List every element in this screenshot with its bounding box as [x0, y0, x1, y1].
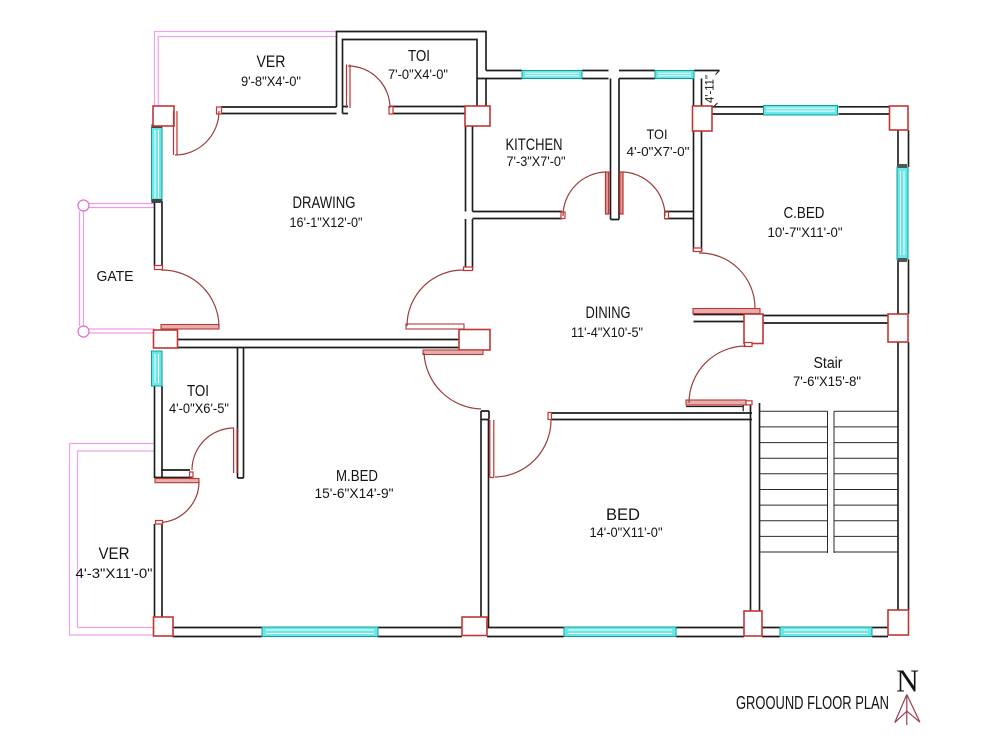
- svg-text:10'-7"X11'-0": 10'-7"X11'-0": [768, 225, 843, 240]
- svg-text:9'-8"X4'-0": 9'-8"X4'-0": [241, 74, 301, 89]
- svg-text:TOI: TOI: [408, 48, 430, 65]
- svg-text:DINING: DINING: [586, 303, 631, 322]
- svg-text:VER: VER: [257, 52, 286, 71]
- svg-text:BED: BED: [606, 505, 640, 524]
- svg-text:4'-0"X7'-0": 4'-0"X7'-0": [627, 144, 690, 159]
- svg-text:4'-11": 4'-11": [705, 75, 717, 103]
- svg-text:VER: VER: [99, 544, 130, 563]
- svg-text:M.BED: M.BED: [336, 468, 378, 485]
- svg-text:TOI: TOI: [647, 126, 668, 142]
- svg-text:GROOUND FLOOR PLAN: GROOUND FLOOR PLAN: [736, 692, 889, 713]
- svg-text:Stair: Stair: [814, 355, 843, 372]
- svg-text:4'-0"X6'-5": 4'-0"X6'-5": [169, 401, 229, 416]
- svg-text:GATE: GATE: [97, 268, 134, 285]
- svg-text:16'-1"X12'-0": 16'-1"X12'-0": [290, 215, 363, 230]
- svg-text:7'-0"X4'-0": 7'-0"X4'-0": [388, 67, 448, 82]
- svg-text:C.BED: C.BED: [784, 205, 825, 222]
- svg-text:7'-6"X15'-8": 7'-6"X15'-8": [793, 374, 861, 389]
- svg-text:15'-6"X14'-9": 15'-6"X14'-9": [315, 486, 394, 501]
- svg-text:TOI: TOI: [187, 383, 209, 400]
- svg-text:DRAWING: DRAWING: [293, 193, 356, 212]
- svg-text:N: N: [896, 664, 919, 699]
- svg-text:KITCHEN: KITCHEN: [506, 135, 563, 154]
- svg-text:11'-4"X10'-5": 11'-4"X10'-5": [571, 325, 643, 340]
- svg-text:7'-3"X7'-0": 7'-3"X7'-0": [507, 154, 566, 169]
- svg-text:4'-3"X11'-0": 4'-3"X11'-0": [76, 566, 153, 581]
- svg-text:14'-0"X11'-0": 14'-0"X11'-0": [590, 525, 663, 540]
